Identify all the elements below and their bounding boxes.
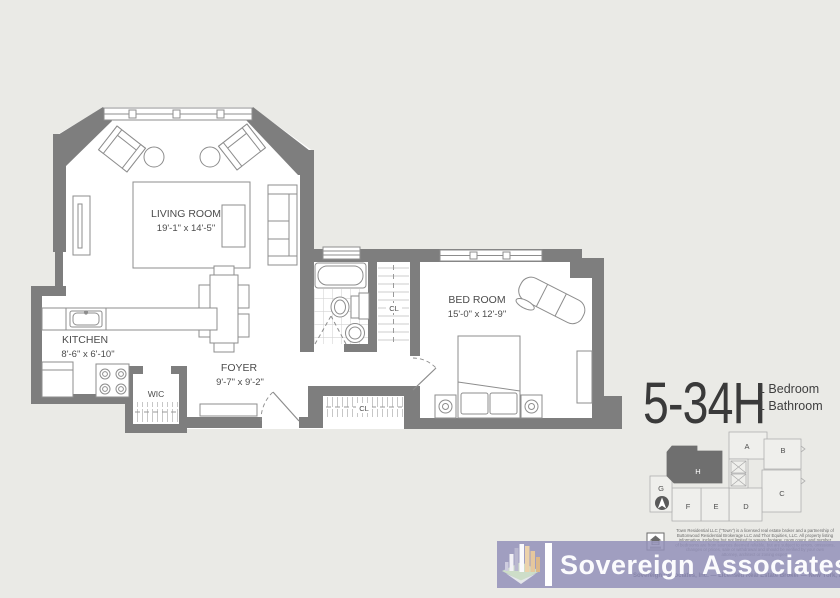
shaft-vent xyxy=(323,247,360,259)
floorplan-page: LIVING ROOM 19'-1" x 14'-5" KITCHEN 8'-6… xyxy=(0,0,840,598)
wic-label: WIC xyxy=(148,389,165,399)
bath-vanity xyxy=(359,293,369,319)
keyplan-label-g: G xyxy=(658,484,664,493)
entry-closet-label: CL xyxy=(359,404,369,413)
living-room-dims: 19'-1" x 14'-5" xyxy=(157,223,215,234)
hall-closet-label: CL xyxy=(389,304,399,313)
ottoman xyxy=(222,205,245,247)
dining-chair xyxy=(238,314,249,337)
side-table-right xyxy=(200,147,220,167)
wall-foyer-bottom xyxy=(187,417,262,428)
unit-bedrooms: 1 Bedroom xyxy=(758,382,819,396)
kitchen-label: KITCHEN xyxy=(62,334,108,346)
toilet xyxy=(331,296,359,318)
kitchen-counter xyxy=(42,308,217,330)
bathroom xyxy=(314,263,369,344)
unit-number: 5-34H xyxy=(643,371,765,436)
bath-sink xyxy=(346,324,365,343)
north-arrow-icon xyxy=(655,496,669,510)
kitchen-dims: 8'-6" x 6'-10" xyxy=(61,349,114,360)
living-room-label: LIVING ROOM xyxy=(151,208,221,220)
dining-chair xyxy=(238,285,249,308)
wall-wic-right xyxy=(179,366,187,433)
nightstand-left xyxy=(435,395,456,418)
bed xyxy=(458,336,520,418)
wall-closet-top xyxy=(308,386,412,396)
keyplan-label-f: F xyxy=(686,502,691,511)
unit-bathrooms: 1 Bathroom xyxy=(758,399,823,413)
keyplan-label-b: B xyxy=(780,446,785,455)
keyplan-label-d: D xyxy=(743,502,749,511)
keyplan-core xyxy=(729,459,748,488)
wall-bedroom-right xyxy=(592,270,604,406)
wall-left-upper xyxy=(53,134,66,252)
kitchen-sink xyxy=(70,311,102,327)
pillow xyxy=(490,393,517,414)
keyplan-label-a: A xyxy=(744,442,749,451)
company-name: Sovereign Associates xyxy=(560,550,840,580)
foyer-label: FOYER xyxy=(221,362,258,374)
wall-bath-bottom-left xyxy=(300,344,314,352)
bedroom-label: BED ROOM xyxy=(448,294,505,306)
side-table-left xyxy=(144,147,164,167)
dresser xyxy=(577,351,592,403)
refrigerator xyxy=(42,362,73,397)
wall-wic-bottom xyxy=(125,424,187,433)
radiator xyxy=(73,196,90,255)
pillow xyxy=(461,393,488,414)
foyer-bench xyxy=(200,404,257,416)
dining-chair xyxy=(199,285,210,308)
brand-banner: Sovereign Associates xyxy=(497,541,840,588)
wall-bedroom-bottom xyxy=(404,418,622,429)
wall-kitchen-left xyxy=(31,286,42,404)
floorplan-canvas: LIVING ROOM 19'-1" x 14'-5" KITCHEN 8'-6… xyxy=(0,0,840,598)
stove xyxy=(96,364,129,397)
keyplan-label-e: E xyxy=(713,502,718,511)
keyplan-label-c: C xyxy=(779,489,785,498)
bathtub xyxy=(315,263,366,288)
wall-bedroom-left xyxy=(410,256,420,356)
keyplan-unit-h-highlight xyxy=(667,446,722,483)
foyer-dims: 9'-7" x 9'-2" xyxy=(216,377,264,388)
bedroom-dims: 15'-0" x 12'-9" xyxy=(448,309,506,320)
nightstand-right xyxy=(521,395,542,418)
wall-wic-top-right xyxy=(171,366,187,374)
banner-divider xyxy=(545,543,552,586)
wic-closet xyxy=(134,402,178,422)
bay-window xyxy=(104,108,252,120)
wall-bath-bottom-right xyxy=(344,344,368,352)
bedroom-window xyxy=(440,250,542,261)
sofa xyxy=(268,185,297,265)
keyplan-label-h: H xyxy=(695,467,700,476)
